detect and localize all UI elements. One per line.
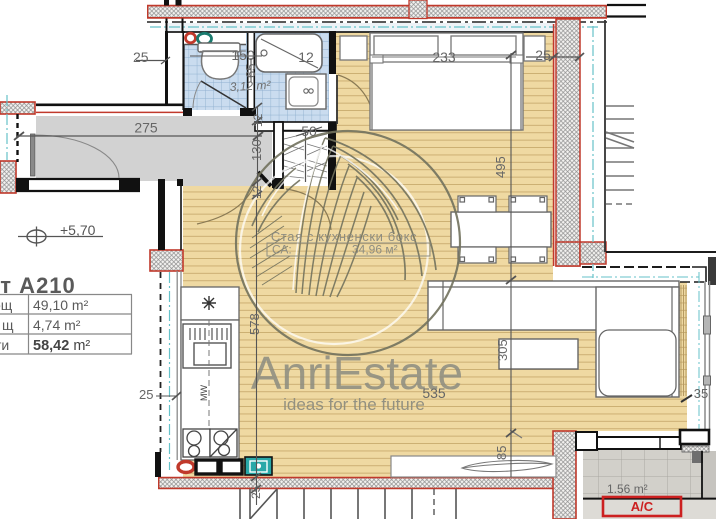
svg-text:275: 275 <box>134 120 158 136</box>
svg-text:35: 35 <box>694 386 708 401</box>
svg-text:12: 12 <box>250 185 264 199</box>
svg-text:305: 305 <box>495 339 510 361</box>
svg-text:1.56 m²: 1.56 m² <box>607 482 648 496</box>
svg-text:25: 25 <box>133 49 149 65</box>
svg-text:12: 12 <box>298 49 314 65</box>
svg-text:578: 578 <box>247 313 262 335</box>
svg-text:25: 25 <box>139 387 153 402</box>
svg-text:495: 495 <box>493 156 508 178</box>
svg-text:MW: MW <box>199 385 209 401</box>
svg-text:535: 535 <box>422 385 446 401</box>
svg-text:4,74 m²: 4,74 m² <box>33 317 81 333</box>
svg-text:34,96 м²: 34,96 м² <box>352 243 398 257</box>
svg-text:233: 233 <box>432 49 456 65</box>
svg-text:130: 130 <box>249 139 264 161</box>
svg-text:щ: щ <box>2 317 14 333</box>
svg-text:ощ: ощ <box>0 297 13 313</box>
svg-text:25: 25 <box>249 485 263 499</box>
svg-text:СА:: СА: <box>272 243 292 257</box>
svg-text:65: 65 <box>243 64 258 78</box>
svg-text:49,10 m²: 49,10 m² <box>33 297 89 313</box>
svg-text:сти: сти <box>0 337 9 353</box>
svg-text:25: 25 <box>535 47 551 63</box>
svg-text:85: 85 <box>494 446 509 460</box>
svg-text:58,42 m²: 58,42 m² <box>33 338 90 354</box>
svg-text:A/C: A/C <box>631 499 654 514</box>
svg-text:12: 12 <box>251 113 265 127</box>
svg-text:ideas for the future: ideas for the future <box>283 395 425 414</box>
svg-text:+5,70: +5,70 <box>60 222 96 238</box>
